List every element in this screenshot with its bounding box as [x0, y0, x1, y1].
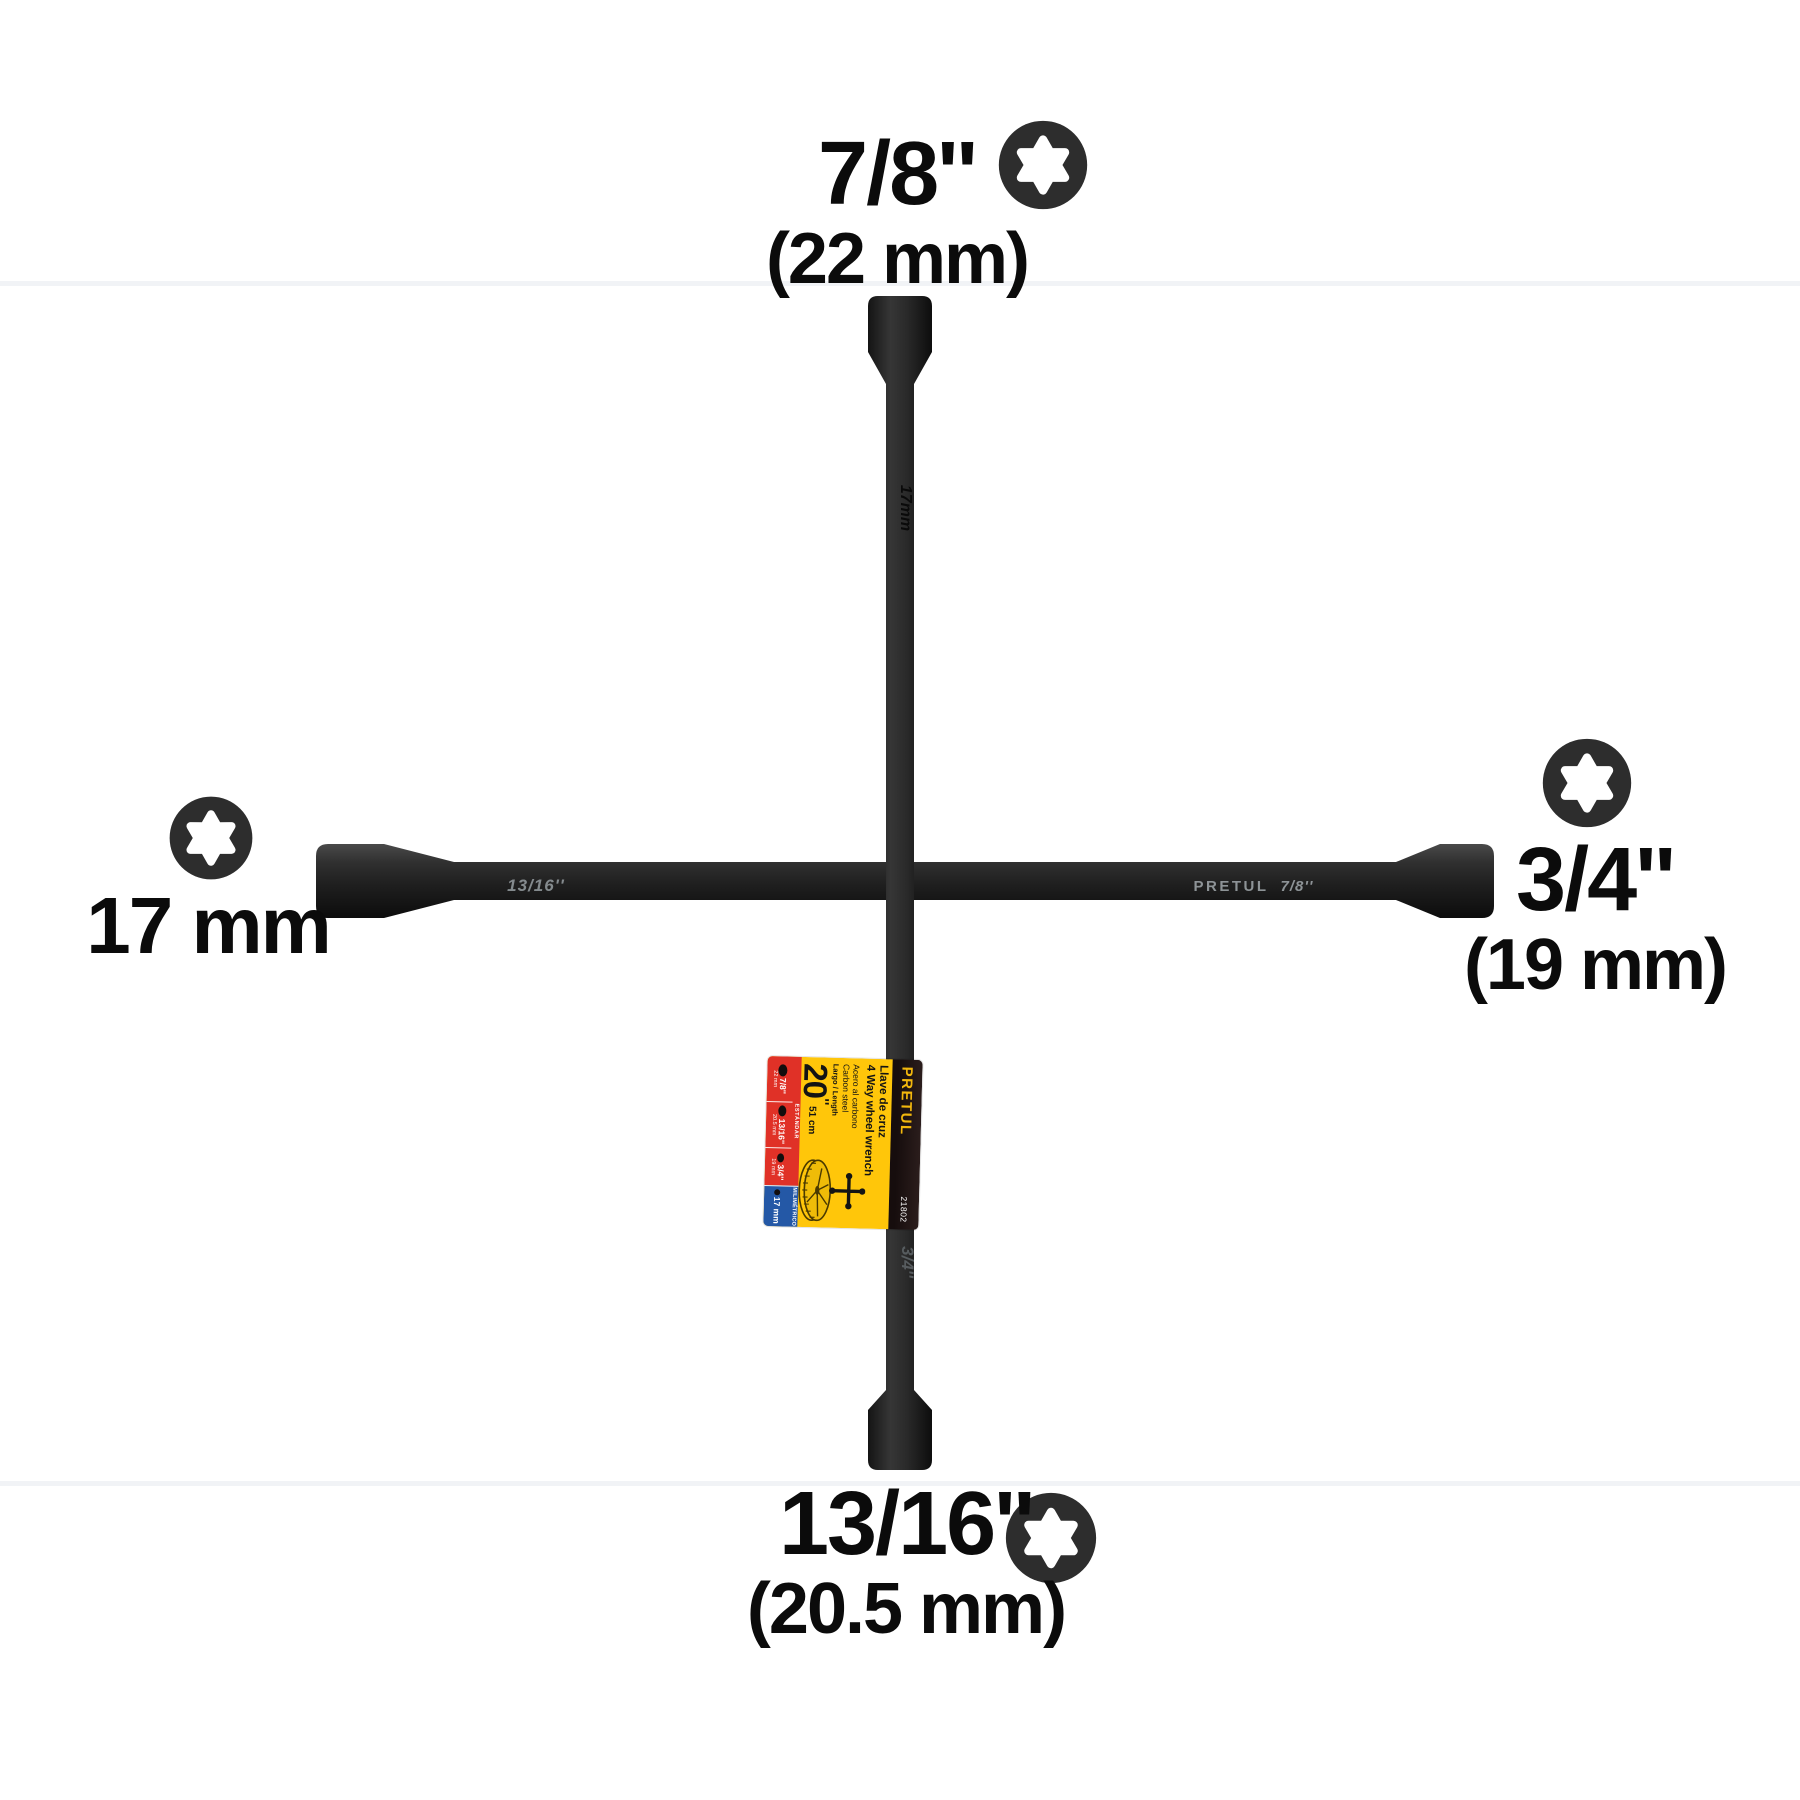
- tag-size-mm: 20.5 mm: [771, 1114, 778, 1136]
- tag-size-mm: 19 mm: [770, 1158, 776, 1175]
- engraving-left-arm: 13/16'': [507, 876, 565, 895]
- cross-wrench-pictogram: [829, 1172, 866, 1209]
- tag-size-value: 13/16'': [776, 1119, 787, 1145]
- length-cm: 51 cm: [806, 1106, 818, 1135]
- socket-hole-dot: [777, 1153, 784, 1162]
- standard-sizes-section: ESTÁNDAR 7/8'' 22 mm 13/1: [764, 1056, 801, 1186]
- size-label-left-size: 17 mm: [58, 884, 358, 967]
- product-tag-header: PRETUL 21802: [888, 1059, 922, 1230]
- product-tag: PRETUL 21802 Llave de cruz 4 Way wheel w…: [763, 1056, 922, 1230]
- size-label-right-size: 3/4'': [1395, 834, 1795, 928]
- size-label-right: 3/4'' (19 mm): [1395, 834, 1795, 1002]
- metric-sizes-section: MILIMÉTRICO 17 mm: [763, 1185, 798, 1227]
- tag-size-cell: 17 mm: [763, 1186, 790, 1227]
- tag-size-value: 7/8'': [778, 1078, 788, 1094]
- brand-name: PRETUL: [897, 1066, 916, 1135]
- wheel-illustration: [798, 1160, 831, 1221]
- tag-size-mm: 22 mm: [772, 1070, 778, 1087]
- metric-label: MILIMÉTRICO: [789, 1187, 798, 1227]
- length-quote-mark: '': [816, 1098, 831, 1106]
- size-label-top: 7/8'' (22 mm): [697, 128, 1097, 296]
- engraving-bottom-arm: 3/4'': [898, 1246, 917, 1279]
- engraving-right-arm-size: 7/8'': [1281, 878, 1314, 895]
- product-tag-body: Llave de cruz 4 Way wheel wrench Acero a…: [763, 1056, 892, 1229]
- tag-size-strip: ESTÁNDAR 7/8'' 22 mm 13/1: [763, 1056, 801, 1227]
- engraving-right-arm-brand: PRETUL: [1194, 878, 1269, 895]
- engraving-top-arm: 17mm: [897, 485, 914, 531]
- socket-hole-dot: [779, 1064, 788, 1076]
- tag-size-value: 17 mm: [771, 1197, 782, 1224]
- socket-profile-icon-right: [1540, 736, 1634, 830]
- tag-size-cell: 13/16'' 20.5 mm: [765, 1101, 792, 1148]
- socket-profile-icon-left: [167, 794, 255, 882]
- size-label-top-metric: (22 mm): [697, 222, 1097, 297]
- size-label-left: 17 mm: [58, 884, 358, 967]
- length-inches: 20: [800, 1063, 832, 1099]
- tag-size-cell: 3/4'' 19 mm: [764, 1147, 791, 1186]
- product-photo-canvas: 13/16'' PRETUL 7/8'' 17mm 3/4'' 7/8'' (2…: [0, 0, 1800, 1800]
- socket-hole-dot: [774, 1189, 780, 1195]
- sku-number: 21802: [898, 1196, 909, 1222]
- tag-size-value: 3/4'': [776, 1164, 786, 1180]
- size-label-top-size: 7/8'': [697, 128, 1097, 222]
- tag-size-cell: 7/8'' 22 mm: [767, 1056, 794, 1102]
- wheel-and-wrench-pictogram: [796, 1154, 866, 1228]
- size-label-bottom: 13/16'' (20.5 mm): [706, 1478, 1106, 1646]
- size-label-right-metric: (19 mm): [1395, 928, 1795, 1003]
- size-label-bottom-metric: (20.5 mm): [706, 1572, 1106, 1647]
- socket-hole-dot: [778, 1106, 786, 1117]
- size-label-bottom-size: 13/16'': [706, 1478, 1106, 1572]
